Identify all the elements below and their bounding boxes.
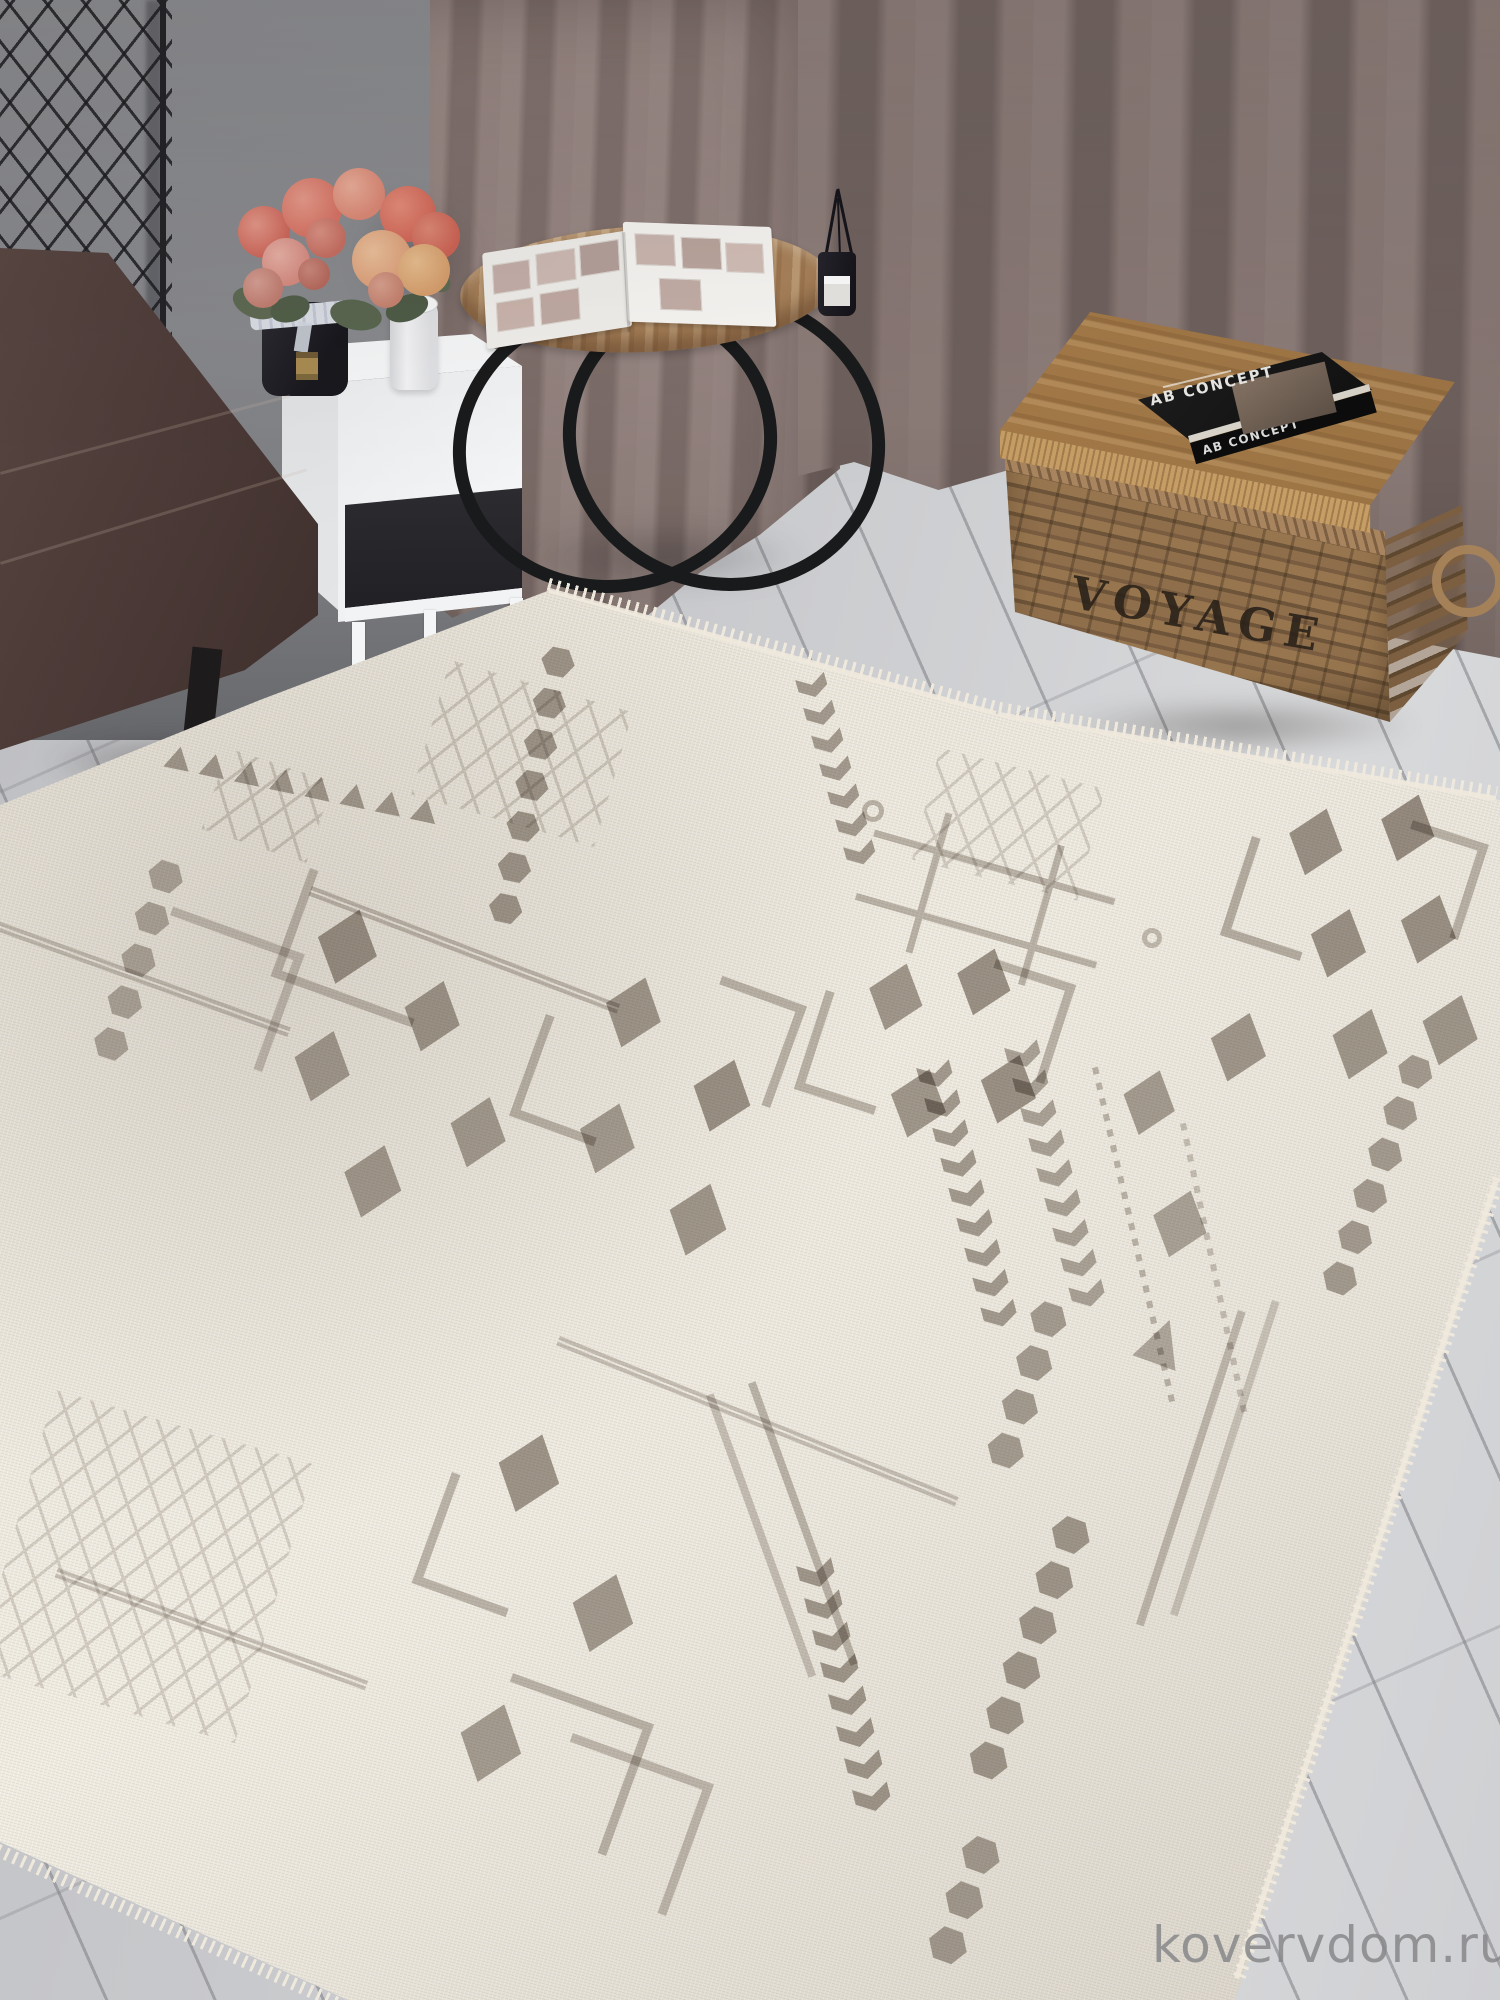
flower-bloom [333,168,385,220]
vase-label [296,352,318,380]
magazine-image [497,298,534,332]
rug-motif-dia [485,1424,572,1522]
rug-motif-dia [393,972,471,1060]
magazine-image [635,234,675,265]
magazine-image [660,279,702,310]
rug-motif-chevcol [796,1557,893,1815]
magazine-image [580,240,619,276]
rug-motif-dia [439,1088,517,1176]
reed-diffuser [812,188,872,318]
rug-motif-hash [845,795,1125,1003]
flower-bloom [298,258,330,290]
rug-motif-trirow [1132,1312,1191,1371]
rug-motif-dia [594,968,673,1057]
rug-motif-lattice [0,1390,315,1743]
rug-motif-line [1170,1300,1280,1616]
wire-grid-frame [160,0,166,338]
rug-motif-dline [556,1336,958,1506]
magazine-page-left [482,230,632,349]
rug-motif-hex [963,1510,1096,1785]
diffuser-label [824,276,850,306]
rug-motif-dia [858,955,933,1039]
rug-motif-L [509,1014,631,1146]
rug-motif-dia [306,900,389,993]
open-magazine [481,218,779,351]
rug-motif-L [685,976,807,1108]
living-room-rug-photo: VOYAGE AB CONCEPT AB CONCEPT kovervdom.r… [0,0,1500,2000]
rug-motif-trirow [163,744,440,824]
magazine-image [536,249,575,285]
rug-motif-L [964,959,1076,1084]
rug-motif-ring [862,800,884,822]
rug-motif-dia [1370,786,1445,870]
watermark: kovervdom.ru [1152,1916,1500,1974]
rug-motif-dots [1180,1123,1248,1418]
rug-motif-dia [559,1564,646,1662]
rug-motif-dots [1092,1067,1177,1409]
rug-motif-dia [970,1046,1047,1132]
rug-motif-dia [568,1094,647,1183]
rope-handle-icon [1432,545,1500,617]
rug-motif-ring [1142,928,1162,948]
flower-bloom [368,272,404,308]
rug-motif-L [1382,820,1489,940]
rug-motif-L [130,907,304,1072]
rug-motif-hex [486,643,578,928]
rug-motif-L [1220,836,1332,961]
rug-motif-L [412,1472,546,1617]
rug-motif-dia [1278,800,1353,884]
rug-motif-dia [880,1060,957,1146]
rug-motif-lattice [202,748,333,863]
magazine-image [726,243,764,272]
rug-motif-lattice [411,660,632,847]
rug-motif-dia [1113,1062,1185,1143]
rug-motif-dia [946,940,1021,1024]
rug-motif-hex [923,1830,1006,1970]
flower-bloom [243,268,283,308]
rug-motif-dia [1200,1004,1277,1090]
magazine-page-right [623,222,777,327]
flower-bloom [398,244,450,296]
rug-motif-chevcol [916,1059,1019,1331]
flower-bouquet [210,150,450,350]
rug-motif-line [748,1381,858,1666]
magazine-image [540,289,579,325]
rug-motif-dia [657,1174,738,1265]
magazine-image [493,260,530,294]
rug-motif-dia [447,1694,534,1792]
rug-motif-L [794,990,906,1115]
rug-motif-dia [1300,900,1377,986]
magazine-image [682,238,722,269]
rug-motif-hex [89,855,188,1066]
rug-motif-chevcol [795,672,878,869]
rug-motif-L [271,868,451,1027]
rug-motif-dline [55,1568,369,1690]
rug-motif-dline [0,918,291,1037]
rug-motif-dia [1411,986,1489,1074]
rug-motif-dia [681,1050,762,1141]
rug-motif-dia [283,1022,361,1110]
rug-motif-lattice [912,748,1105,901]
rug-motif-dia [1142,1182,1217,1266]
flower-bloom [306,218,346,258]
rug-motif-chevcol [1004,1039,1107,1311]
rug-motif-line [1136,1310,1246,1626]
rug-motif-L [465,1673,654,1856]
rug-motif-dia [1321,1000,1399,1088]
rug-motif-hex [982,1296,1072,1473]
rug-motif-dline [308,886,620,1014]
rug-motif-dia [333,1136,414,1227]
rug-motif-line [706,1393,816,1678]
rug-motif-L [525,1733,714,1916]
rug-motif-dia [1390,886,1467,972]
rug-motif-hex [1317,1050,1438,1301]
